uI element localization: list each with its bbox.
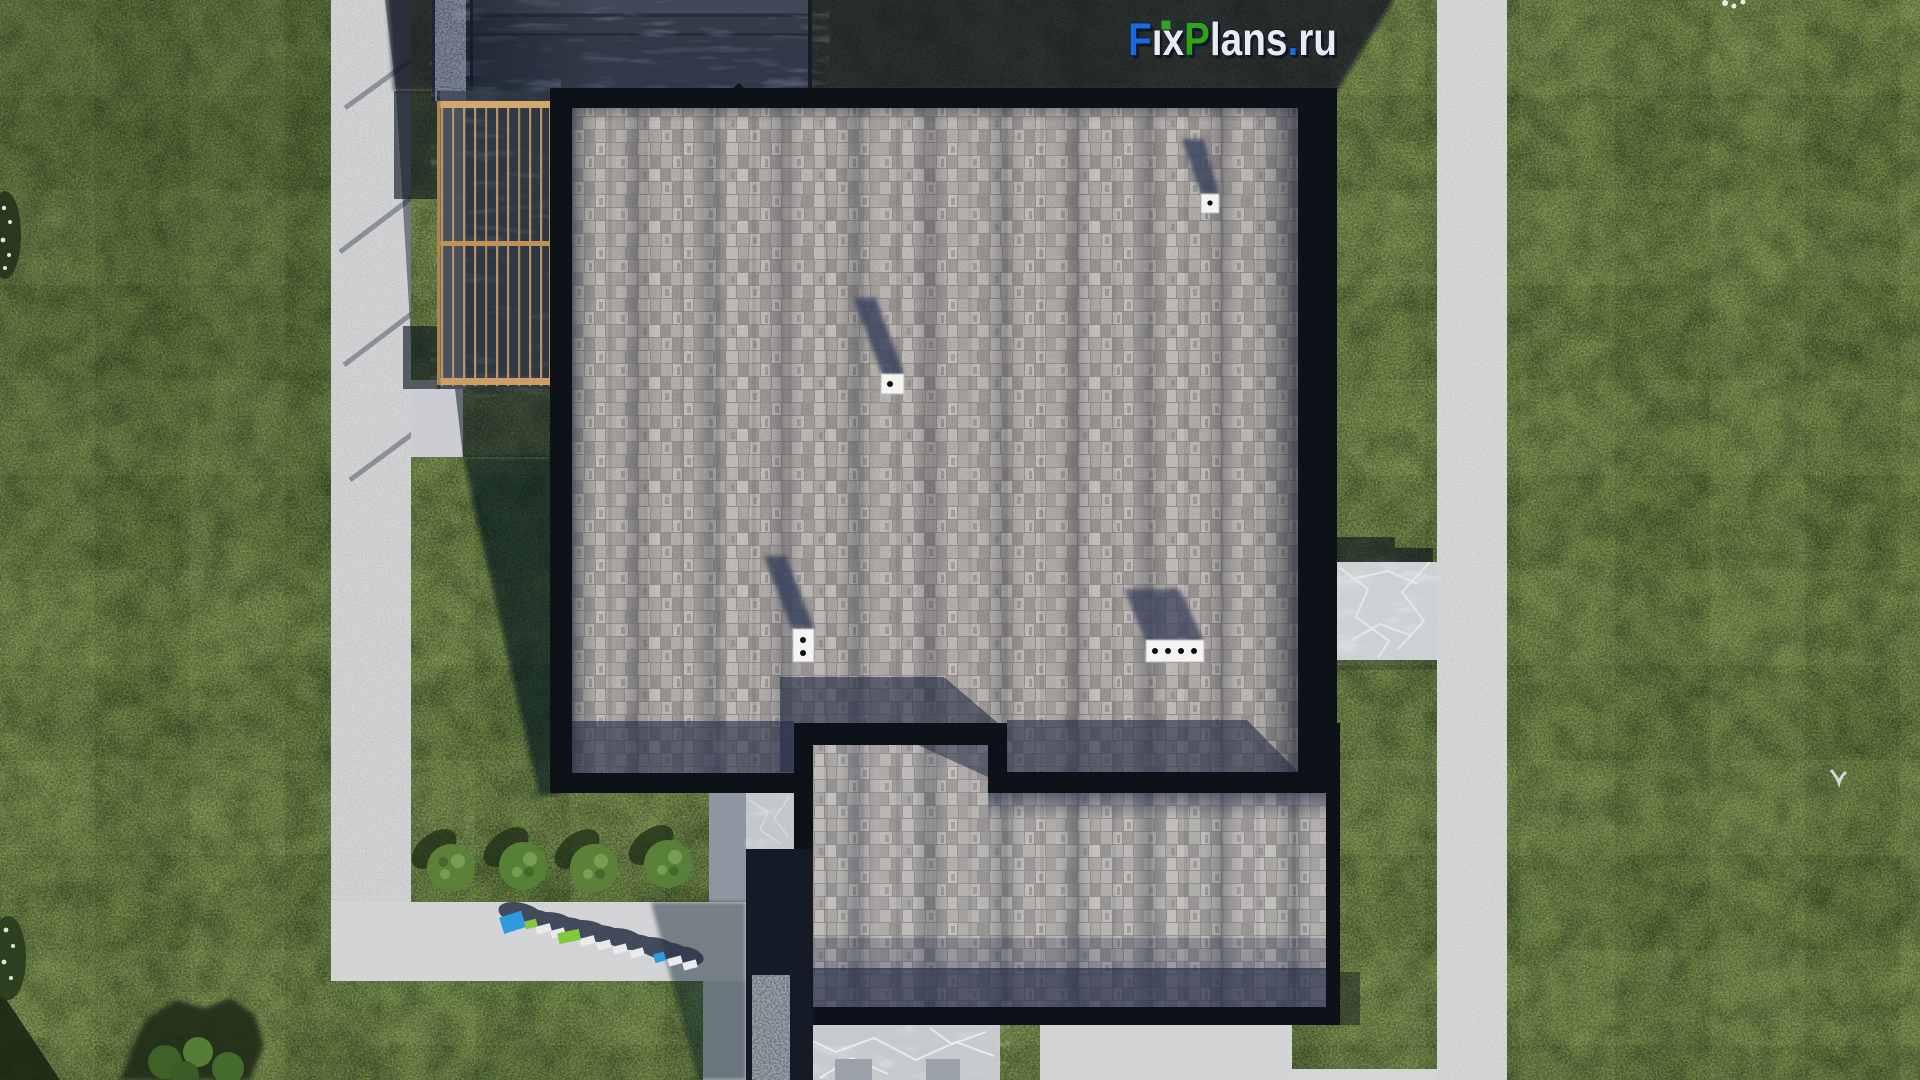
svg-text:FıxPlans.ru: FıxPlans.ru xyxy=(1128,13,1337,65)
